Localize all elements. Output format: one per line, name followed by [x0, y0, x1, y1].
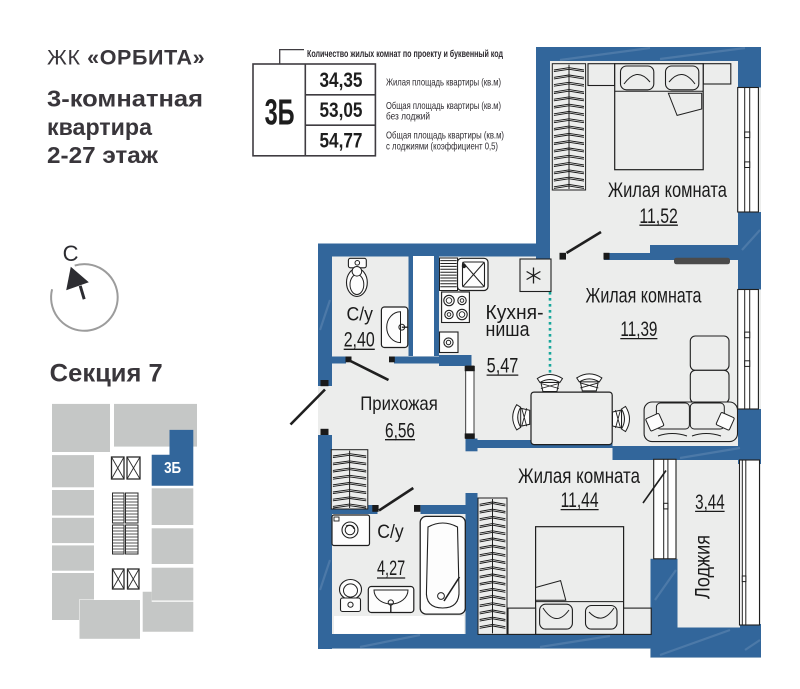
svg-text:Количество жилых комнат по про: Количество жилых комнат по проекту и бук… [307, 48, 503, 60]
svg-text:С/у: С/у [347, 303, 374, 325]
svg-text:11,52: 11,52 [639, 204, 678, 228]
svg-text:3,44: 3,44 [695, 490, 725, 514]
svg-text:2,40: 2,40 [344, 328, 375, 352]
svg-text:Жилая комната: Жилая комната [586, 284, 702, 308]
svg-text:3Б: 3Б [164, 460, 181, 477]
svg-text:2-27 этаж: 2-27 этаж [47, 142, 158, 168]
svg-text:3Б: 3Б [265, 92, 295, 133]
svg-text:С: С [63, 241, 79, 266]
svg-text:с лоджиями (коэффициент 0,5): с лоджиями (коэффициент 0,5) [386, 141, 498, 153]
svg-text:11,44: 11,44 [561, 488, 599, 512]
svg-text:54,77: 54,77 [320, 129, 363, 153]
svg-text:Общая площадь квартиры (кв.м): Общая площадь квартиры (кв.м) [386, 130, 504, 142]
svg-text:4,27: 4,27 [377, 556, 405, 580]
svg-text:Общая площадь квартиры (кв.м): Общая площадь квартиры (кв.м) [386, 100, 501, 112]
svg-text:С/у: С/у [377, 521, 404, 543]
svg-text:Жилая комната: Жилая комната [518, 464, 640, 488]
svg-text:Жилая площадь квартиры (кв.м): Жилая площадь квартиры (кв.м) [386, 78, 501, 89]
svg-text:6,56: 6,56 [385, 418, 415, 442]
svg-text:Прихожая: Прихожая [360, 393, 438, 415]
svg-text:3-комнатная: 3-комнатная [47, 86, 203, 112]
svg-text:Жилая комната: Жилая комната [608, 178, 727, 202]
svg-text:11,39: 11,39 [620, 317, 657, 341]
svg-text:Лоджия: Лоджия [691, 535, 715, 599]
svg-text:ниша: ниша [486, 318, 531, 341]
svg-text:5,47: 5,47 [487, 354, 519, 378]
svg-text:Секция 7: Секция 7 [50, 360, 163, 388]
svg-text:53,05: 53,05 [320, 98, 363, 122]
svg-text:ЖК «ОРБИТА»: ЖК «ОРБИТА» [47, 46, 205, 70]
svg-text:без лоджий: без лоджий [386, 111, 430, 123]
svg-text:квартира: квартира [47, 114, 153, 140]
svg-text:34,35: 34,35 [320, 68, 363, 92]
